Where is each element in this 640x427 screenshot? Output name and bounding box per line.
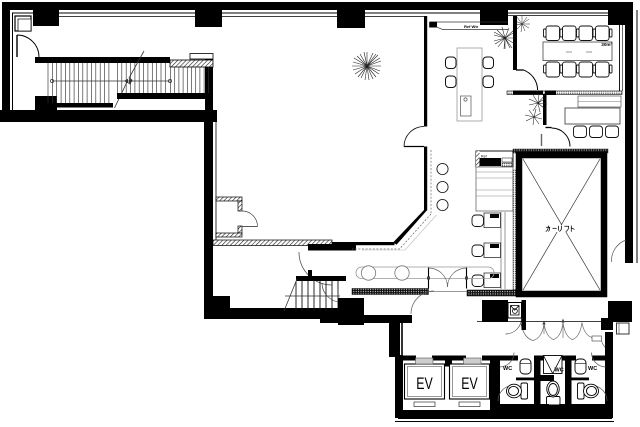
svg-text:WC: WC (588, 366, 597, 372)
svg-text:WC: WC (503, 366, 512, 372)
svg-text:EV: EV (461, 374, 478, 393)
svg-text:EV: EV (416, 374, 433, 393)
svg-text:Ref: Ref (481, 155, 487, 159)
svg-text:WC: WC (555, 368, 564, 374)
svg-text:30m²: 30m² (601, 42, 612, 47)
svg-text:Ref Wtr: Ref Wtr (464, 24, 479, 29)
